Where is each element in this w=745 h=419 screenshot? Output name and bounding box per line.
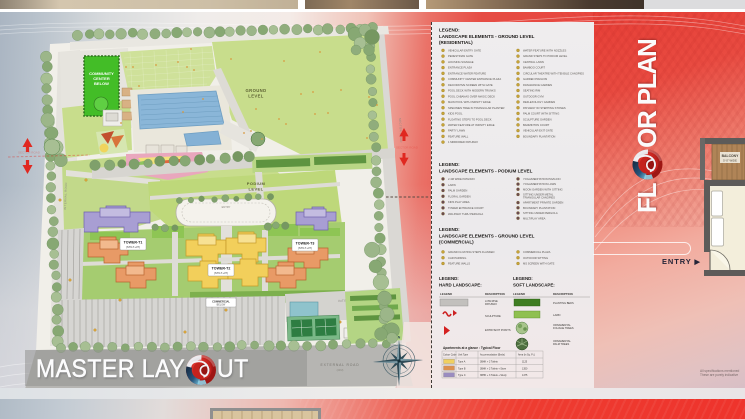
svg-text:OR PLAN: OR PLAN [632, 39, 662, 148]
svg-text:BALCONY: BALCONY [722, 154, 740, 158]
svg-text:5'-0" WIDE: 5'-0" WIDE [723, 159, 737, 163]
svg-text:FL: FL [632, 182, 662, 213]
